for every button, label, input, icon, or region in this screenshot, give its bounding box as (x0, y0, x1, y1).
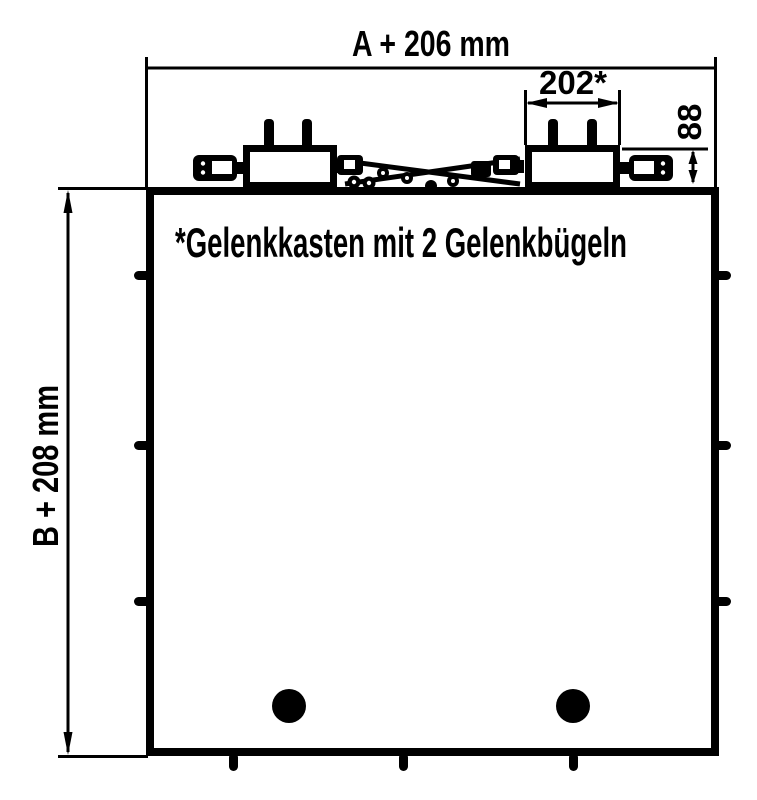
chain-link-hole (367, 181, 371, 185)
mounting-hole-left (272, 689, 306, 723)
chain-fitting-right-stub (514, 160, 524, 173)
dimension-88-arrow-down (689, 170, 698, 184)
gelenkkasten-right-pin-2 (587, 119, 597, 149)
frame-nub-left-1 (134, 271, 152, 280)
chain-link-hole (352, 180, 356, 184)
dimension-a-label: A + 206 mm (352, 23, 510, 64)
main-frame-outline (150, 191, 715, 752)
gelenkkasten-left-pin-2 (302, 119, 312, 149)
frame-nub-bottom-3 (569, 753, 578, 771)
connector-left-dot-2 (201, 170, 205, 174)
connector-left-slot (212, 161, 232, 174)
frame-nub-right-3 (713, 597, 731, 606)
chain-link-hole (451, 179, 455, 183)
footnote: *Gelenkkasten mit 2 Gelenkbügeln (175, 219, 627, 266)
chain-fitting-left-slot (344, 160, 355, 169)
connector-left-dot-1 (201, 161, 205, 165)
gelenkkasten-right-body (529, 149, 617, 186)
dimension-b-arrow-up (64, 190, 73, 213)
drawing-canvas: A + 206 mm B + 208 mm (0, 0, 757, 800)
frame-nub-right-2 (713, 441, 731, 450)
dimension-b-label: B + 208 mm (25, 385, 66, 547)
connector-right-stub (619, 162, 631, 174)
dimension-88-label: 88 (671, 104, 708, 141)
mounting-hole-right (556, 689, 590, 723)
frame-nub-bottom-1 (229, 753, 238, 771)
gelenkkasten-right-pin-1 (548, 119, 558, 149)
connector-right (619, 155, 673, 181)
dimension-202-arrow-right (598, 98, 619, 108)
frame-nub-bottom-2 (399, 753, 408, 771)
gelenkkasten-left-body (247, 149, 334, 186)
dimension-202-arrow-left (526, 98, 547, 108)
chain-fitting-right-small (471, 161, 491, 177)
frame-nub-left-3 (134, 597, 152, 606)
gelenkkasten-left-pin-1 (264, 119, 274, 149)
connector-right-slot (634, 161, 654, 174)
main-frame (134, 191, 731, 771)
chain-fitting-right-slot (499, 160, 510, 169)
chain-link-hole (381, 171, 385, 175)
dimension-gelenkkasten-width: 202* (526, 64, 620, 145)
frame-nub-left-2 (134, 441, 152, 450)
connector-right-dot-2 (661, 170, 665, 174)
connector-left (193, 155, 247, 181)
chain-link (425, 180, 437, 192)
chain-fitting-left-stub (333, 160, 343, 173)
frame-nub-right-1 (713, 271, 731, 280)
gelenkkasten-left (193, 119, 334, 186)
dimension-88-arrow-up (689, 150, 698, 164)
gelenkbuegel-chain-cross (333, 155, 524, 192)
technical-drawing: A + 206 mm B + 208 mm (0, 0, 757, 800)
dimension-height-b: B + 208 mm (25, 189, 148, 757)
connector-left-stub (235, 162, 247, 174)
chain-link-hole (405, 176, 409, 180)
connector-right-dot-1 (661, 161, 665, 165)
gelenkkasten-right (529, 119, 674, 186)
dimension-b-arrow-down (64, 732, 73, 755)
dimension-202-label: 202* (539, 64, 607, 101)
